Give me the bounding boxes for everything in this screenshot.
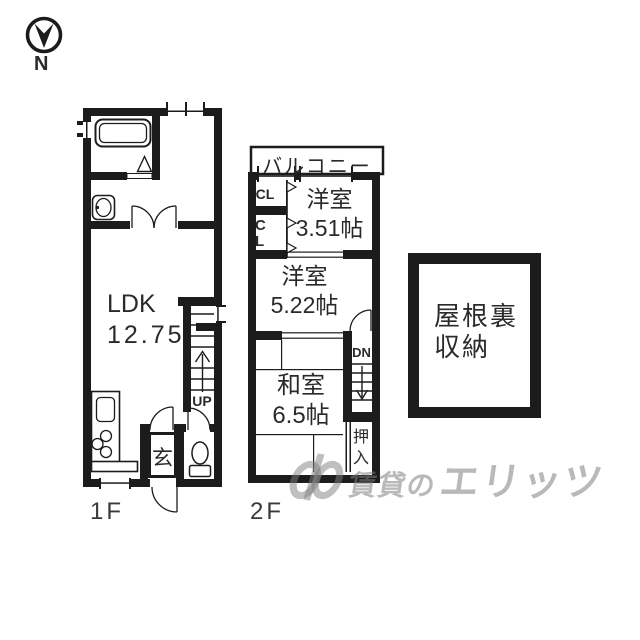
toilet-door-icon: [188, 408, 210, 430]
dn-label: DN: [350, 345, 373, 360]
room-name: 和室: [260, 371, 342, 401]
attic-line1: 屋根裏: [434, 301, 518, 332]
closet-upper-label: CL: [250, 186, 280, 202]
room-door-icon-2f: [350, 310, 371, 331]
washbasin-icon: [93, 196, 115, 220]
ldk-double-door-icon: [132, 206, 176, 228]
compass-north-label: N: [34, 53, 56, 76]
floorplan-graphics: [0, 0, 640, 640]
genkan-door-icon: [150, 407, 173, 430]
japanese-room-label: 和室 6.5帖: [260, 371, 342, 431]
ldk-room-label: LDK 12.75: [107, 289, 185, 351]
balcony-label: バルコニー: [250, 150, 384, 179]
room-size: 3.51帖: [287, 214, 372, 243]
closet-lower-label: CL: [255, 218, 271, 250]
attic-label: 屋根裏 収納: [434, 301, 518, 363]
watermark-brand: エリッツ: [437, 463, 606, 502]
room-size: 5.22帖: [256, 291, 353, 320]
western-room-mid-label: 洋室 5.22帖: [256, 262, 353, 320]
ldk-size: 12.75: [107, 320, 185, 351]
entrance-door-icon: [152, 487, 177, 512]
stairs-down-icon: [352, 364, 372, 400]
watermark-logo-icon: [284, 450, 349, 502]
room-size: 6.5帖: [260, 401, 342, 431]
toilet-icon: [190, 442, 211, 477]
room-name: 洋室: [287, 185, 372, 214]
ldk-name: LDK: [107, 289, 185, 320]
kitchen-counter-icon: [92, 392, 138, 472]
up-label: UP: [189, 393, 215, 409]
western-room-small-label: 洋室 3.51帖: [287, 185, 372, 243]
compass-north-icon: [28, 19, 61, 52]
bathtub-icon: [96, 120, 151, 147]
genkan-label: 玄: [148, 442, 177, 472]
room-name: 洋室: [256, 262, 353, 291]
bathroom-door-icon: [127, 157, 152, 179]
watermark: 賃貸の エリッツ: [284, 450, 608, 502]
floor1-label: 1F: [90, 498, 124, 526]
floorplan-image: N LDK 12.75 UP 玄 1F バルコニー CL CL 洋室 3.51帖…: [0, 0, 640, 640]
attic-line2: 収納: [434, 332, 518, 363]
stairs-up-icon: [191, 314, 214, 392]
watermark-prefix: 賃貸の: [347, 472, 438, 500]
floor2-label: 2F: [250, 498, 284, 526]
